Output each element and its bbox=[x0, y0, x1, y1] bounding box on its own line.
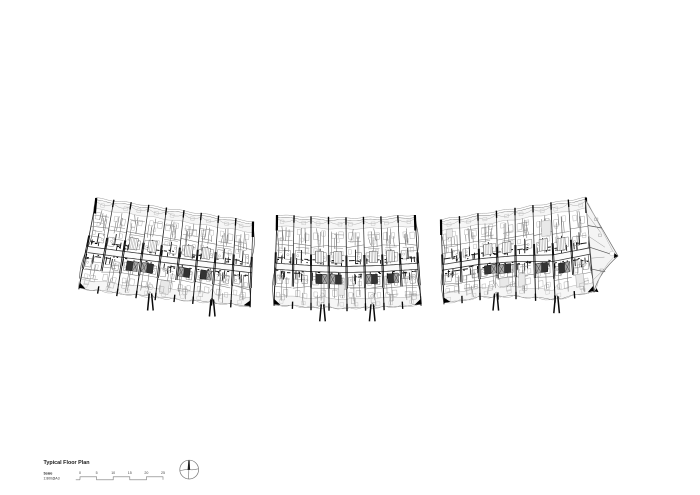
svg-text:10: 10 bbox=[111, 471, 115, 475]
svg-text:15: 15 bbox=[128, 471, 132, 475]
svg-text:5: 5 bbox=[96, 471, 98, 475]
svg-text:20: 20 bbox=[144, 471, 148, 475]
svg-text:Scale: Scale bbox=[44, 471, 53, 475]
svg-text:25: 25 bbox=[161, 471, 165, 475]
svg-text:1:800@A3: 1:800@A3 bbox=[44, 477, 60, 481]
svg-text:0: 0 bbox=[79, 471, 81, 475]
svg-text:Typical Floor Plan: Typical Floor Plan bbox=[44, 460, 90, 466]
